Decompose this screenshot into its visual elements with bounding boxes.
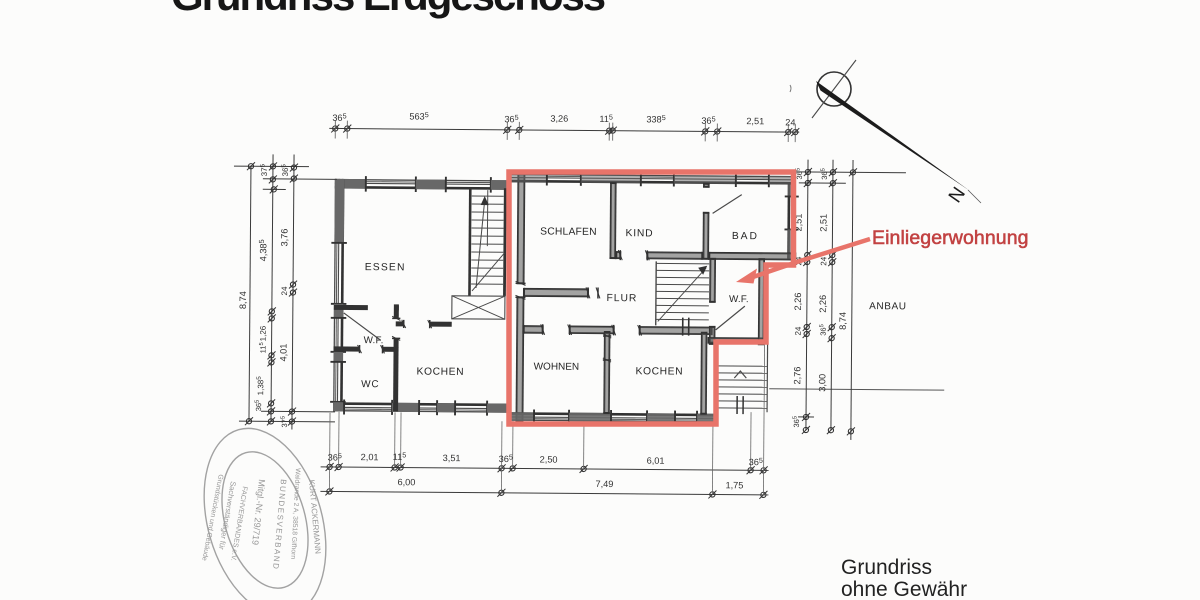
svg-text:Mitgl.-Nr. 29/719: Mitgl.-Nr. 29/719 [250, 479, 267, 546]
svg-text:115: 115 [259, 342, 268, 353]
svg-text:2,26: 2,26 [818, 295, 828, 313]
svg-text:24: 24 [794, 326, 803, 336]
svg-text:W.F.: W.F. [364, 335, 384, 346]
svg-text:1,75: 1,75 [725, 480, 743, 490]
svg-text:2,76: 2,76 [792, 367, 802, 385]
svg-text:3,00: 3,00 [817, 374, 827, 392]
svg-text:2,51: 2,51 [746, 116, 764, 126]
svg-text:3385: 3385 [646, 114, 665, 125]
svg-text:2,01: 2,01 [361, 452, 379, 462]
svg-text:KOCHEN: KOCHEN [416, 367, 464, 378]
svg-text:115: 115 [393, 451, 407, 462]
svg-text:2,50: 2,50 [540, 454, 558, 464]
svg-text:3,51: 3,51 [443, 453, 461, 463]
svg-text:24: 24 [785, 117, 795, 127]
svg-text:6,00: 6,00 [397, 477, 415, 487]
svg-text:365: 365 [504, 114, 518, 125]
svg-text:N: N [945, 184, 970, 207]
svg-text:24: 24 [280, 286, 289, 296]
svg-text:ESSEN: ESSEN [365, 262, 406, 273]
svg-text:KIND: KIND [626, 228, 654, 239]
svg-text:BUNDESVERBAND: BUNDESVERBAND [271, 479, 288, 571]
svg-text:Einliegerwohnung: Einliegerwohnung [872, 227, 1029, 249]
svg-text:3,76: 3,76 [279, 229, 289, 247]
svg-text:8,74: 8,74 [238, 291, 248, 309]
svg-text:ANBAU: ANBAU [869, 301, 907, 312]
svg-text:3,26: 3,26 [550, 114, 568, 124]
svg-text:Waldrande 2 A, 38518 Gifhorn: Waldrande 2 A, 38518 Gifhorn [289, 468, 301, 560]
svg-text:365: 365 [499, 453, 513, 464]
svg-text:365: 365 [254, 400, 263, 412]
svg-text:365: 365 [820, 168, 829, 180]
svg-text:W.F.: W.F. [729, 294, 749, 305]
svg-text:365: 365 [280, 164, 290, 177]
svg-text:4,01: 4,01 [278, 344, 288, 362]
svg-text:24: 24 [819, 256, 828, 266]
svg-text:365: 365 [819, 324, 828, 336]
svg-text:5635: 5635 [409, 111, 428, 122]
svg-text:4,385: 4,385 [258, 239, 269, 261]
svg-text:365: 365 [701, 115, 715, 126]
svg-text:FLUR: FLUR [606, 293, 637, 304]
svg-text:115: 115 [599, 113, 613, 124]
svg-text:7,49: 7,49 [595, 479, 613, 489]
svg-text:1,26: 1,26 [259, 325, 268, 341]
svg-text:375: 375 [259, 163, 269, 176]
svg-text:WOHNEN: WOHNEN [534, 361, 580, 372]
svg-text:WC: WC [361, 379, 379, 390]
svg-text:2,26: 2,26 [793, 293, 803, 311]
svg-text:375: 375 [280, 416, 289, 428]
svg-text:SCHLAFEN: SCHLAFEN [540, 226, 597, 237]
svg-text:365: 365 [749, 457, 763, 468]
svg-text:8,74: 8,74 [838, 312, 848, 330]
svg-text:6,01: 6,01 [647, 456, 665, 466]
svg-text:365: 365 [332, 112, 346, 123]
svg-text:365: 365 [792, 416, 801, 428]
svg-text:365: 365 [328, 452, 342, 463]
svg-text:KOCHEN: KOCHEN [635, 366, 683, 377]
svg-text:1,385: 1,385 [256, 376, 266, 396]
svg-text:BAD: BAD [732, 231, 759, 242]
svg-text:2,51: 2,51 [818, 214, 828, 232]
svg-text:KURT ACKERMANN: KURT ACKERMANN [307, 479, 322, 554]
